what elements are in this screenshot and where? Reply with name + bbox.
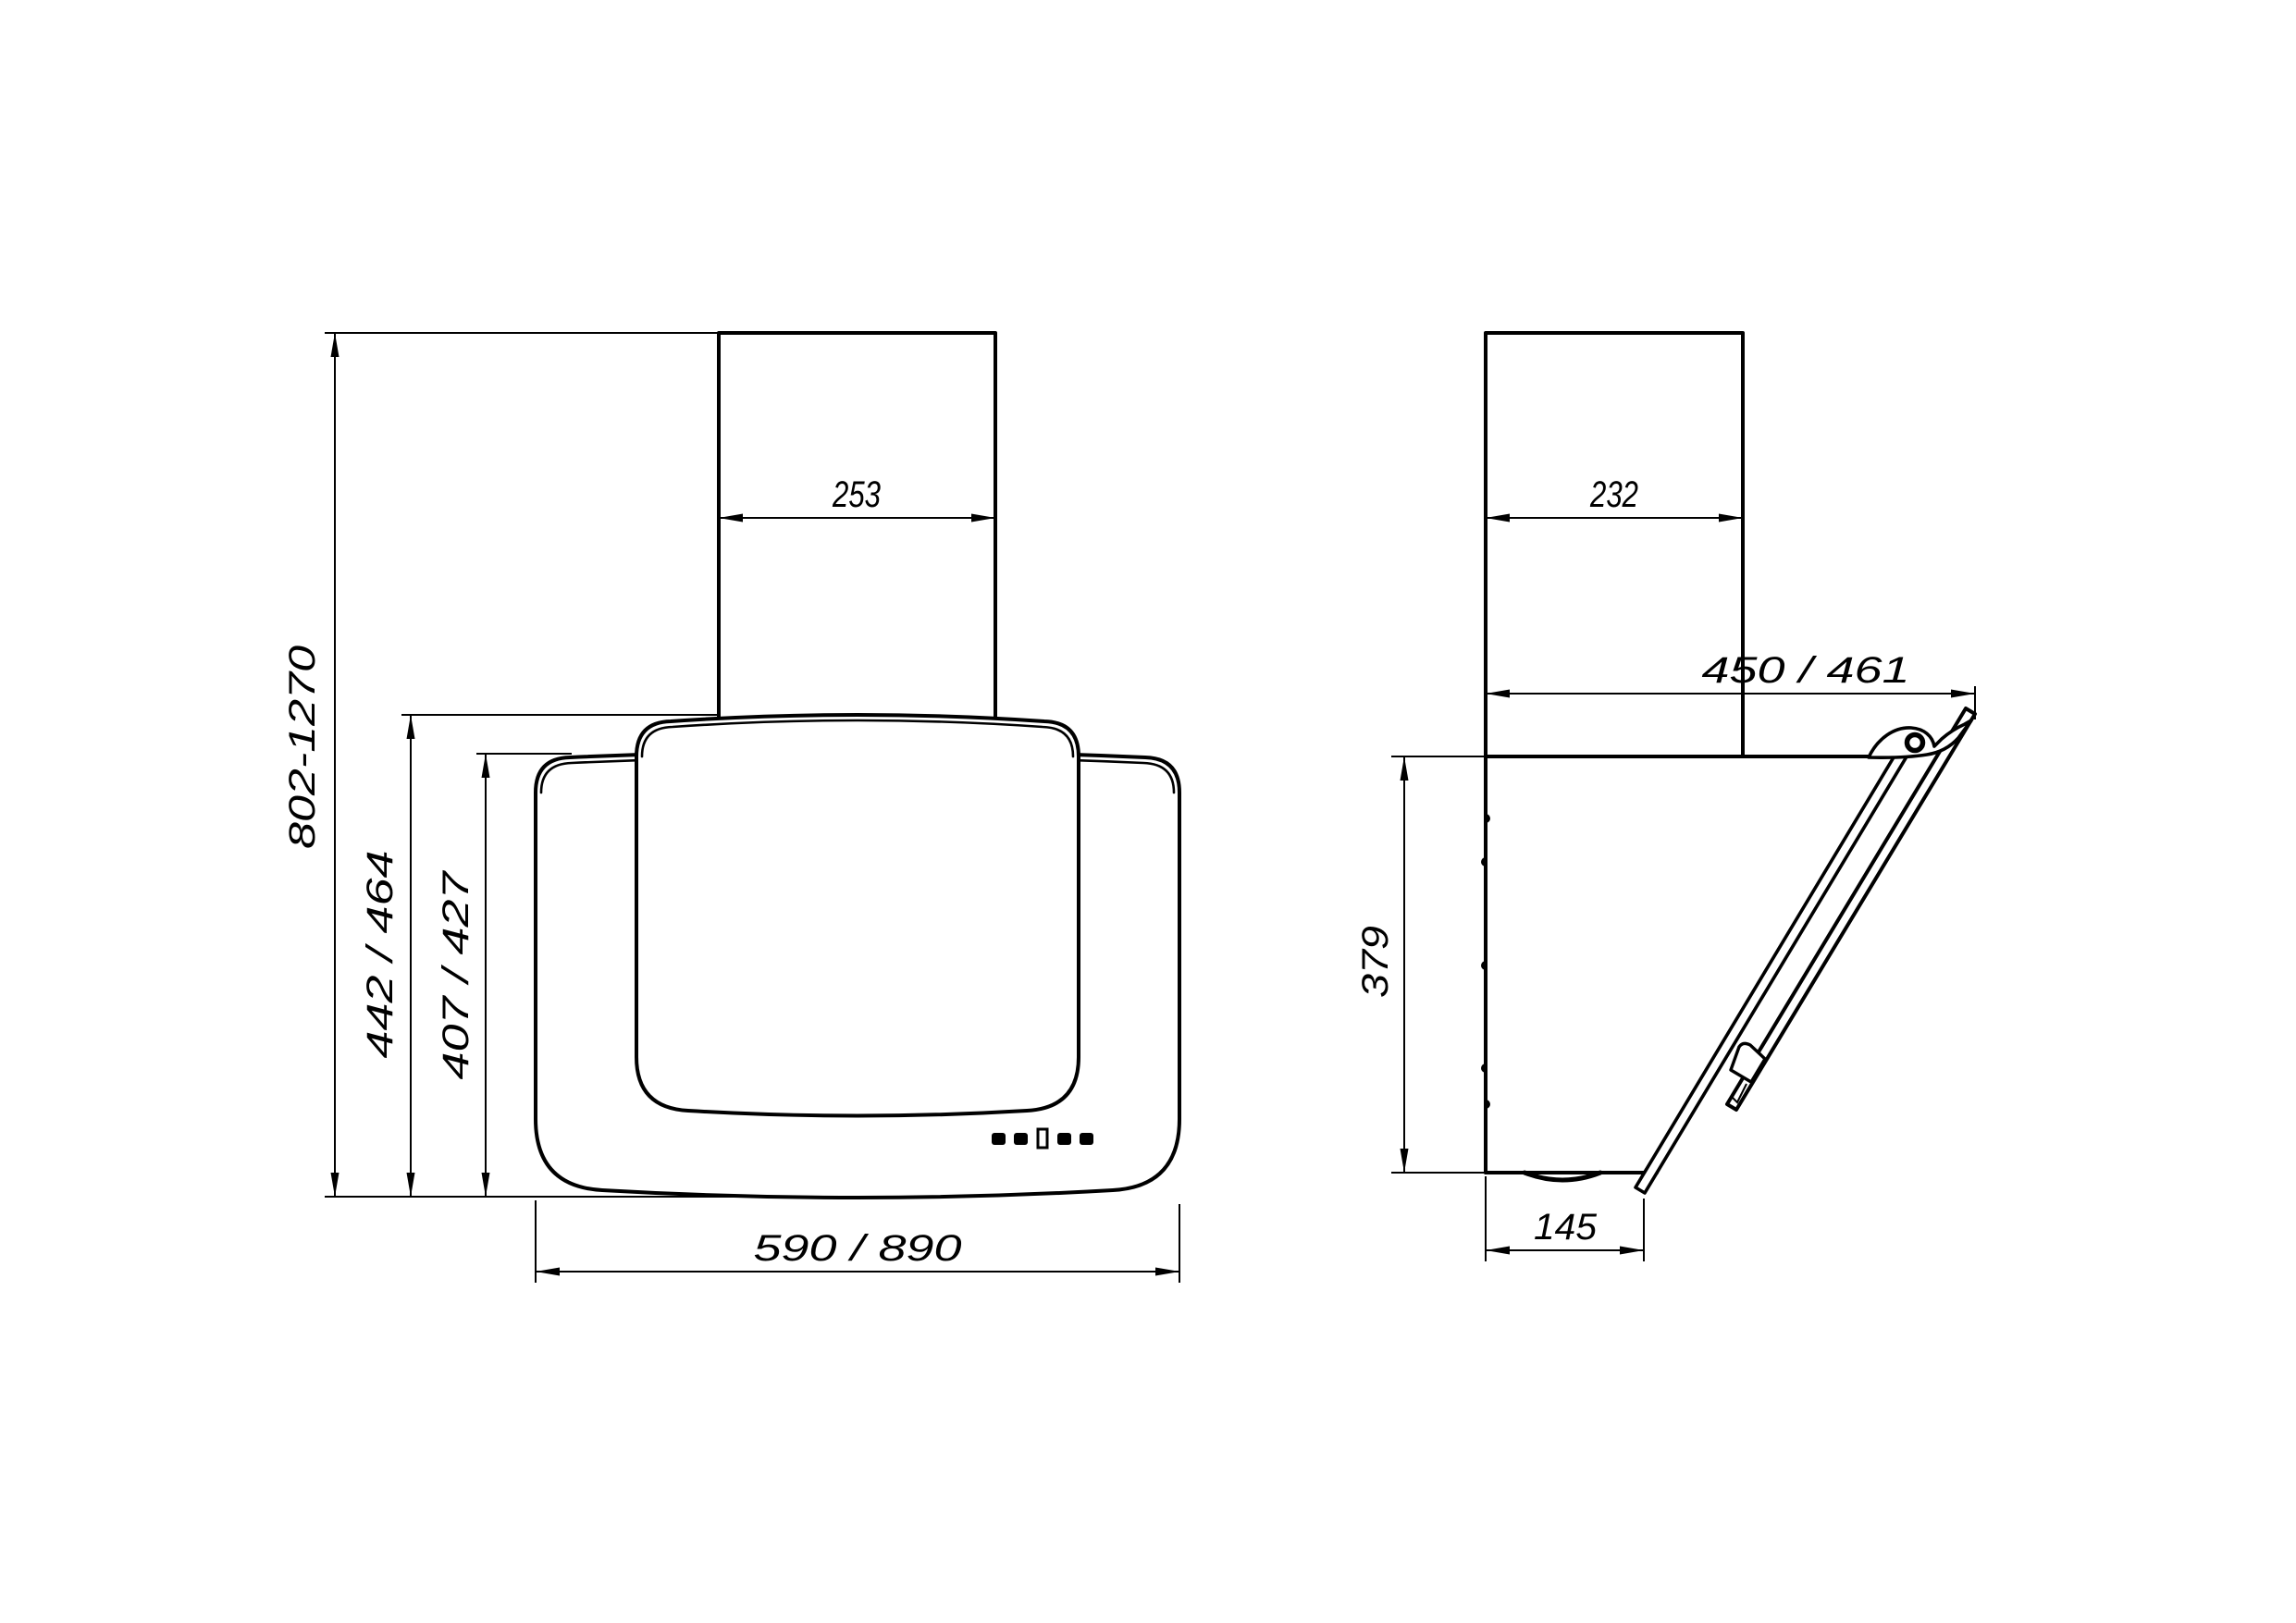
- dim-body-height: 442 / 464: [360, 715, 415, 1197]
- dim-label-bottom-depth: 145: [1534, 1207, 1598, 1248]
- side-view: 232 450 / 461 379 145: [1355, 333, 1975, 1261]
- dim-chimney-width: 253: [719, 474, 995, 523]
- side-glass-panel: [1727, 708, 1975, 1110]
- dim-label-back-height: 379: [1355, 926, 1396, 998]
- button-4: [1080, 1133, 1093, 1145]
- hood-dimension-drawing: 253 802-1270 442 / 464 407 / 427: [0, 0, 2296, 1623]
- dim-label-hood-width: 590 / 890: [754, 1228, 962, 1269]
- dim-label-height-range: 802-1270: [282, 646, 323, 849]
- side-body-incline-panel: [1636, 734, 1917, 1193]
- dim-label-chimney-depth: 232: [1589, 474, 1638, 515]
- dim-bottom-depth: 145: [1486, 1207, 1644, 1255]
- dim-label-body-height: 442 / 464: [360, 851, 401, 1059]
- dim-hood-width: 590 / 890: [536, 1228, 1179, 1276]
- dim-height-range: 802-1270: [282, 333, 339, 1197]
- dim-back-height: 379: [1355, 756, 1409, 1173]
- button-1: [992, 1133, 1006, 1145]
- hinge-pivot: [1907, 735, 1923, 751]
- dim-total-depth: 450 / 461: [1486, 650, 1975, 698]
- dim-glass-height: 407 / 427: [436, 754, 490, 1197]
- dim-label-total-depth: 450 / 461: [1702, 650, 1910, 691]
- front-glass-outline: [636, 715, 1079, 1116]
- drawing-page: 253 802-1270 442 / 464 407 / 427: [0, 0, 2296, 1623]
- dim-label-chimney-width: 253: [832, 474, 881, 515]
- button-3: [1057, 1133, 1071, 1145]
- button-2: [1014, 1133, 1028, 1145]
- front-view: 253 802-1270 442 / 464 407 / 427: [282, 333, 1179, 1283]
- back-wall-studs: [1481, 814, 1490, 1109]
- dim-chimney-depth: 232: [1486, 474, 1743, 523]
- front-chimney-outline: [719, 333, 995, 740]
- dim-label-glass-height: 407 / 427: [436, 869, 476, 1079]
